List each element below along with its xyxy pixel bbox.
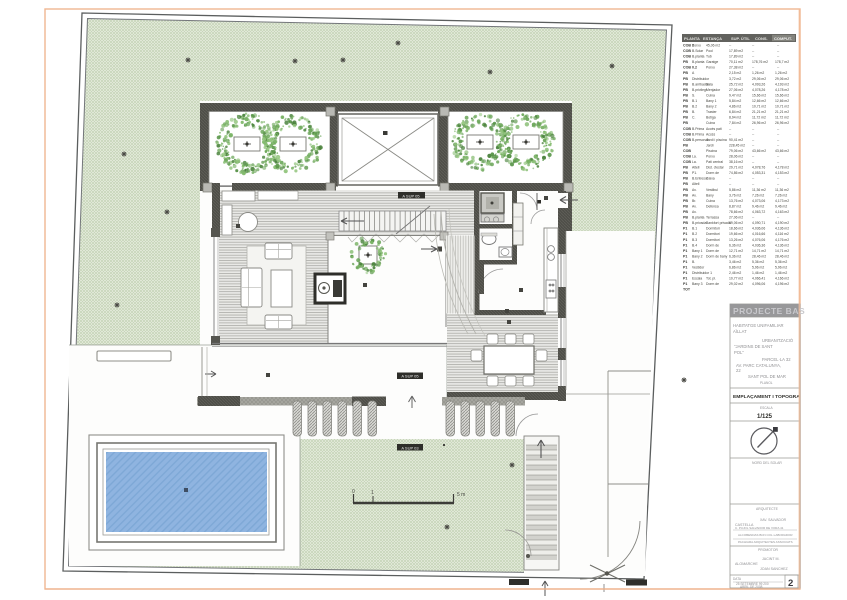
svg-text:5,96 m2: 5,96 m2 bbox=[752, 266, 764, 270]
svg-text:P1.: P1. bbox=[692, 171, 697, 175]
svg-text:P1: P1 bbox=[683, 266, 687, 270]
svg-text:4,136 m2: 4,136 m2 bbox=[775, 243, 789, 247]
svg-text:PB: PB bbox=[683, 171, 688, 175]
svg-text:S.: S. bbox=[692, 93, 695, 97]
svg-text:PB: PB bbox=[683, 188, 688, 192]
svg-text:SANT POL DE MAR: SANT POL DE MAR bbox=[748, 374, 786, 379]
svg-text:12,71 m2: 12,71 m2 bbox=[729, 249, 743, 253]
svg-text:18,66 m2: 18,66 m2 bbox=[729, 227, 743, 231]
svg-text:Bany 1: Bany 1 bbox=[692, 249, 703, 253]
svg-text:B.1: B.1 bbox=[692, 227, 697, 231]
svg-text:Tub: Tub bbox=[706, 55, 712, 59]
svg-text:PB: PB bbox=[683, 177, 688, 181]
svg-text:22: 22 bbox=[736, 368, 741, 373]
svg-text:PB: PB bbox=[683, 121, 688, 125]
svg-text:--: -- bbox=[752, 55, 754, 59]
svg-text:P1: P1 bbox=[683, 238, 687, 242]
svg-text:PB: PB bbox=[683, 110, 688, 114]
svg-text:29,06 m2: 29,06 m2 bbox=[775, 77, 789, 81]
svg-text:1,26 m2: 1,26 m2 bbox=[752, 71, 764, 75]
svg-text:Dormitori: Dormitori bbox=[706, 232, 720, 236]
svg-text:La.: La. bbox=[692, 160, 697, 164]
svg-text:Dormitori: Dormitori bbox=[706, 238, 720, 242]
svg-text:NORD DEL SOLAR: NORD DEL SOLAR bbox=[752, 461, 782, 465]
svg-text:PB: PB bbox=[683, 82, 688, 86]
svg-text:PB: PB bbox=[683, 216, 688, 220]
svg-text:12,66 m2: 12,66 m2 bbox=[752, 99, 766, 103]
svg-text:2,15 m2: 2,15 m2 bbox=[729, 71, 741, 75]
svg-text:P1: P1 bbox=[683, 254, 687, 258]
svg-text:La.: La. bbox=[692, 155, 697, 159]
svg-text:PB: PB bbox=[683, 105, 688, 109]
svg-text:7,84 m2: 7,84 m2 bbox=[729, 121, 741, 125]
svg-text:PB: PB bbox=[683, 204, 688, 208]
svg-text:2,46 m2: 2,46 m2 bbox=[729, 271, 741, 275]
svg-text:COB: COB bbox=[683, 149, 691, 153]
svg-text:DATA: DATA bbox=[733, 577, 742, 581]
svg-text:3,72 m2: 3,72 m2 bbox=[729, 77, 741, 81]
svg-text:178,7 m2: 178,7 m2 bbox=[775, 60, 789, 64]
svg-text:4,066,41: 4,066,41 bbox=[752, 277, 765, 281]
svg-text:Bany: Bany bbox=[706, 193, 714, 197]
svg-text:4,036,06: 4,036,06 bbox=[752, 227, 765, 231]
svg-text:Dorm de: Dorm de bbox=[706, 243, 719, 247]
svg-text:Botiga: Botiga bbox=[706, 116, 716, 120]
svg-text:--: -- bbox=[752, 44, 754, 48]
svg-text:27,06 m2: 27,06 m2 bbox=[729, 216, 743, 220]
svg-text:POL": POL" bbox=[734, 350, 744, 355]
svg-text:70,11 m2: 70,11 m2 bbox=[729, 60, 743, 64]
svg-text:ALOMARCHE: ALOMARCHE bbox=[735, 562, 758, 566]
svg-text:B.1: B.1 bbox=[692, 99, 697, 103]
svg-text:P1: P1 bbox=[683, 227, 687, 231]
svg-text:AV. PARC CATALUNYA,: AV. PARC CATALUNYA, bbox=[736, 363, 781, 368]
svg-text:4,063,72: 4,063,72 bbox=[752, 210, 765, 214]
svg-text:--: -- bbox=[752, 177, 754, 181]
svg-text:ESCALA: ESCALA bbox=[760, 406, 773, 410]
svg-text:4,176 m2: 4,176 m2 bbox=[775, 238, 789, 242]
svg-text:Dorm de: Dorm de bbox=[706, 282, 719, 286]
svg-text:Altell: Altell bbox=[692, 182, 700, 186]
svg-text:4,078,26: 4,078,26 bbox=[752, 88, 765, 92]
svg-text:Bany 3: Bany 3 bbox=[692, 282, 703, 286]
svg-text:--: -- bbox=[752, 49, 754, 53]
svg-text:Av.: Av. bbox=[692, 188, 697, 192]
svg-text:15,66 m2: 15,66 m2 bbox=[752, 93, 766, 97]
svg-text:B.3: B.3 bbox=[692, 238, 697, 242]
svg-text:COMPUT.: COMPUT. bbox=[774, 36, 792, 41]
svg-text:Cuina: Cuina bbox=[706, 93, 715, 97]
svg-text:--: -- bbox=[729, 182, 731, 186]
svg-text:Bany 2: Bany 2 bbox=[692, 254, 703, 258]
svg-text:4,096,06: 4,096,06 bbox=[752, 282, 765, 286]
svg-text:B.planta: B.planta bbox=[692, 216, 705, 220]
svg-text:--: -- bbox=[752, 132, 754, 136]
svg-text:--: -- bbox=[729, 132, 731, 136]
svg-text:--: -- bbox=[752, 216, 754, 220]
svg-text:6,36 m2: 6,36 m2 bbox=[729, 243, 741, 247]
svg-text:--: -- bbox=[752, 182, 754, 186]
svg-text:PB: PB bbox=[683, 88, 688, 92]
svg-text:PB: PB bbox=[683, 93, 688, 97]
svg-text:Jardí: Jardí bbox=[706, 143, 714, 147]
svg-text:PB: PB bbox=[683, 193, 688, 197]
svg-text:4,86 m2: 4,86 m2 bbox=[729, 105, 741, 109]
svg-text:--: -- bbox=[777, 182, 779, 186]
svg-text:4,053,31: 4,053,31 bbox=[752, 171, 765, 175]
svg-text:8,94 m2: 8,94 m2 bbox=[729, 116, 741, 120]
svg-text:Accés: Accés bbox=[706, 132, 716, 136]
svg-text:29,71 m2: 29,71 m2 bbox=[729, 166, 743, 170]
svg-text:Vestibul: Vestibul bbox=[706, 188, 718, 192]
svg-text:Dorm de: Dorm de bbox=[706, 249, 719, 253]
svg-text:PB: PB bbox=[683, 99, 688, 103]
svg-text:"JARDINS DE SANT: "JARDINS DE SANT bbox=[734, 344, 773, 349]
svg-text:4,090,71: 4,090,71 bbox=[752, 221, 765, 225]
svg-text:4,193 m2: 4,193 m2 bbox=[775, 82, 789, 86]
svg-text:0: 0 bbox=[352, 489, 355, 495]
svg-text:EMPLAÇAMENT I TOPOGRA: EMPLAÇAMENT I TOPOGRA bbox=[733, 394, 800, 400]
svg-text:--: -- bbox=[777, 55, 779, 59]
svg-text:PB: PB bbox=[683, 77, 688, 81]
svg-text:6,36 m2: 6,36 m2 bbox=[729, 254, 741, 258]
svg-text:PB: PB bbox=[683, 199, 688, 203]
svg-text:4,078,76: 4,078,76 bbox=[752, 166, 765, 170]
svg-text:--: -- bbox=[777, 160, 779, 164]
svg-text:COB: COB bbox=[683, 132, 691, 136]
svg-text:HABITATGE UNIFAMILIAR: HABITATGE UNIFAMILIAR bbox=[733, 323, 784, 328]
svg-text:Tot. pl.: Tot. pl. bbox=[706, 277, 716, 281]
svg-text:28,46 m2: 28,46 m2 bbox=[775, 254, 789, 258]
svg-text:--: -- bbox=[777, 143, 779, 147]
svg-text:8,87 m2: 8,87 m2 bbox=[729, 204, 741, 208]
svg-text:PB: PB bbox=[683, 221, 688, 225]
svg-text:21,21 m2: 21,21 m2 bbox=[775, 110, 789, 114]
svg-text:PROJECTE BAS: PROJECTE BAS bbox=[733, 306, 805, 316]
svg-text:4,016,66: 4,016,66 bbox=[752, 232, 765, 236]
svg-text:1,26 m2: 1,26 m2 bbox=[775, 71, 787, 75]
svg-text:A SUP 05: A SUP 05 bbox=[401, 374, 419, 379]
svg-text:--: -- bbox=[752, 143, 754, 147]
svg-text:228,45 m2: 228,45 m2 bbox=[729, 143, 745, 147]
svg-text:10,71 m2: 10,71 m2 bbox=[775, 105, 789, 109]
svg-text:Accés pati: Accés pati bbox=[706, 127, 722, 131]
svg-text:Bankfort privada: Bankfort privada bbox=[706, 221, 731, 225]
svg-text:4,166 m2: 4,166 m2 bbox=[775, 277, 789, 281]
svg-text:--: -- bbox=[777, 49, 779, 53]
svg-text:PB: PB bbox=[683, 143, 688, 147]
svg-text:P1: P1 bbox=[683, 232, 687, 236]
svg-text:ALCOBENDAS BCN COL·LABORADOR: ALCOBENDAS BCN COL·LABORADOR bbox=[738, 533, 793, 537]
svg-text:--: -- bbox=[752, 66, 754, 70]
svg-text:--: -- bbox=[752, 155, 754, 159]
svg-text:14,71 m2: 14,71 m2 bbox=[752, 249, 766, 253]
svg-text:1,46 m2: 1,46 m2 bbox=[775, 271, 787, 275]
svg-text:JACINT M.: JACINT M. bbox=[762, 557, 780, 561]
svg-text:10,77 m2: 10,77 m2 bbox=[729, 277, 743, 281]
svg-text:Traster: Traster bbox=[706, 110, 717, 114]
svg-text:B.privada: B.privada bbox=[692, 221, 706, 225]
svg-text:13,76 m2: 13,76 m2 bbox=[729, 199, 743, 203]
svg-text:--: -- bbox=[777, 155, 779, 159]
svg-text:5,86 m2: 5,86 m2 bbox=[729, 188, 741, 192]
svg-text:4,178 m2: 4,178 m2 bbox=[775, 166, 789, 170]
svg-text:P1: P1 bbox=[683, 282, 687, 286]
svg-text:11,36 m2: 11,36 m2 bbox=[752, 188, 766, 192]
svg-text:5,96 m2: 5,96 m2 bbox=[775, 266, 787, 270]
svg-text:6,86 m2: 6,86 m2 bbox=[729, 266, 741, 270]
svg-text:4,076,06: 4,076,06 bbox=[752, 238, 765, 242]
svg-text:7,26 m2: 7,26 m2 bbox=[752, 193, 764, 197]
svg-text:P1: P1 bbox=[683, 277, 687, 281]
svg-text:5,36 m2: 5,36 m2 bbox=[752, 260, 764, 264]
svg-text:COB: COB bbox=[683, 49, 691, 53]
svg-text:B.Solar: B.Solar bbox=[692, 49, 704, 53]
svg-text:11,72 m2: 11,72 m2 bbox=[752, 116, 766, 120]
svg-text:Altell: Altell bbox=[692, 166, 700, 170]
svg-text:28,06 m2: 28,06 m2 bbox=[729, 155, 743, 159]
svg-text:--: -- bbox=[777, 127, 779, 131]
svg-text:AÏLLAT: AÏLLAT bbox=[733, 329, 747, 334]
svg-text:--: -- bbox=[729, 127, 731, 131]
svg-text:1/125: 1/125 bbox=[757, 414, 773, 420]
svg-text:89,06 m2: 89,06 m2 bbox=[729, 221, 743, 225]
svg-text:17,89 m2: 17,89 m2 bbox=[729, 49, 743, 53]
svg-text:4,178 m2: 4,178 m2 bbox=[775, 88, 789, 92]
svg-text:COB: COB bbox=[683, 155, 691, 159]
svg-text:27,06 m2: 27,06 m2 bbox=[729, 88, 743, 92]
svg-text:B.privilegi: B.privilegi bbox=[692, 88, 707, 92]
svg-text:1,46 m2: 1,46 m2 bbox=[752, 271, 764, 275]
svg-text:19,66 m2: 19,66 m2 bbox=[729, 232, 743, 236]
svg-text:5,36 m2: 5,36 m2 bbox=[775, 260, 787, 264]
svg-text:10,71 m2: 10,71 m2 bbox=[752, 105, 766, 109]
svg-text:--: -- bbox=[729, 44, 731, 48]
svg-text:B.2: B.2 bbox=[692, 105, 697, 109]
svg-text:15,66 m2: 15,66 m2 bbox=[775, 93, 789, 97]
svg-text:9,46 m2: 9,46 m2 bbox=[775, 204, 787, 208]
svg-text:--: -- bbox=[752, 127, 754, 131]
svg-text:90,41 m2: 90,41 m2 bbox=[729, 138, 743, 142]
svg-text:B.planta: B.planta bbox=[692, 60, 705, 64]
svg-text:Av.: Av. bbox=[692, 210, 697, 214]
svg-text:C.: C. bbox=[692, 116, 695, 120]
svg-text:78,66 m2: 78,66 m2 bbox=[729, 210, 743, 214]
svg-text:Dist. d'estar: Dist. d'estar bbox=[706, 166, 725, 170]
svg-text:CONS.: CONS. bbox=[755, 36, 768, 41]
svg-text:Menjador: Menjador bbox=[706, 88, 721, 92]
svg-text:PARCEL·LA 32: PARCEL·LA 32 bbox=[762, 357, 791, 362]
svg-text:14,71 m2: 14,71 m2 bbox=[775, 249, 789, 253]
svg-text:Sala: Sala bbox=[706, 82, 713, 86]
svg-text:A SUP 05: A SUP 05 bbox=[402, 193, 420, 198]
svg-text:--: -- bbox=[777, 132, 779, 136]
svg-text:--: -- bbox=[777, 216, 779, 220]
svg-text:Cuina: Cuina bbox=[706, 121, 715, 125]
svg-text:178,76 m2: 178,76 m2 bbox=[752, 60, 768, 64]
svg-text:Av.: Av. bbox=[692, 193, 697, 197]
svg-text:Porxo: Porxo bbox=[706, 66, 715, 70]
svg-text:B.2: B.2 bbox=[692, 232, 697, 236]
svg-text:C. PUJOL SALVADOR DE VORA 41: C. PUJOL SALVADOR DE VORA 41 bbox=[735, 526, 784, 530]
svg-text:21,21 m2: 21,21 m2 bbox=[752, 110, 766, 114]
svg-text:11,36 m2: 11,36 m2 bbox=[775, 188, 789, 192]
svg-text:Bany 1: Bany 1 bbox=[706, 99, 717, 103]
svg-text:PB: PB bbox=[683, 182, 688, 186]
svg-text:26,96 m2: 26,96 m2 bbox=[775, 121, 789, 125]
svg-text:3,46 m2: 3,46 m2 bbox=[729, 260, 741, 264]
svg-text:25,72 m2: 25,72 m2 bbox=[729, 82, 743, 86]
svg-text:5 m: 5 m bbox=[457, 492, 465, 498]
svg-text:PLANTA: PLANTA bbox=[684, 36, 700, 41]
svg-text:Vestidor: Vestidor bbox=[692, 266, 705, 270]
svg-text:45,06 m2: 45,06 m2 bbox=[706, 44, 720, 48]
svg-text:26,96 m2: 26,96 m2 bbox=[752, 121, 766, 125]
svg-text:Br.: Br. bbox=[692, 199, 696, 203]
svg-text:P1: P1 bbox=[683, 260, 687, 264]
svg-text:ARQUITECTE: ARQUITECTE bbox=[756, 507, 779, 511]
svg-text:12,66 m2: 12,66 m2 bbox=[775, 99, 789, 103]
svg-text:1: 1 bbox=[371, 490, 374, 496]
svg-text:PB: PB bbox=[683, 166, 688, 170]
svg-text:27,38 m2: 27,38 m2 bbox=[729, 66, 743, 70]
svg-text:9,47 m2: 9,47 m2 bbox=[729, 93, 741, 97]
svg-text:ESTANÇA: ESTANÇA bbox=[703, 36, 722, 41]
svg-text:Escala: Escala bbox=[692, 277, 702, 281]
svg-text:4,163 m2: 4,163 m2 bbox=[775, 210, 789, 214]
svg-text:COB: COB bbox=[683, 127, 691, 131]
svg-text:--: -- bbox=[729, 177, 731, 181]
svg-text:B.4: B.4 bbox=[692, 243, 697, 247]
svg-text:--: -- bbox=[777, 44, 779, 48]
svg-text:Distribuidor 1: Distribuidor 1 bbox=[692, 271, 712, 275]
svg-text:29,06 m2: 29,06 m2 bbox=[752, 77, 766, 81]
svg-text:SUP. ÚTIL: SUP. ÚTIL bbox=[731, 36, 750, 41]
svg-text:29,02 m2: 29,02 m2 bbox=[729, 282, 743, 286]
svg-text:4,153 m2: 4,153 m2 bbox=[775, 171, 789, 175]
svg-text:13,26 m2: 13,26 m2 bbox=[729, 238, 743, 242]
svg-text:Distribuidor: Distribuidor bbox=[692, 77, 710, 81]
svg-text:JOAN SANCHEZ: JOAN SANCHEZ bbox=[760, 567, 789, 571]
svg-text:3,76 m2: 3,76 m2 bbox=[729, 193, 741, 197]
svg-text:Piscina: Piscina bbox=[706, 149, 717, 153]
svg-text:COB: COB bbox=[683, 160, 691, 164]
svg-text:4,073,06: 4,073,06 bbox=[752, 199, 765, 203]
svg-text:COB: COB bbox=[683, 55, 691, 59]
svg-text:5,84 m2: 5,84 m2 bbox=[729, 99, 741, 103]
svg-text:Jardí i piscina: Jardí i piscina bbox=[706, 138, 727, 142]
svg-text:9,46 m2: 9,46 m2 bbox=[752, 204, 764, 208]
svg-text:--: -- bbox=[777, 138, 779, 142]
svg-text:43,66 m2: 43,66 m2 bbox=[775, 149, 789, 153]
svg-text:Porxo: Porxo bbox=[692, 44, 701, 48]
svg-text:Dorm de: Dorm de bbox=[706, 171, 719, 175]
svg-text:74,86 m2: 74,86 m2 bbox=[729, 171, 743, 175]
svg-text:Cuina: Cuina bbox=[706, 199, 715, 203]
svg-text:11,72 m2: 11,72 m2 bbox=[775, 116, 789, 120]
svg-text:B.: B. bbox=[692, 110, 695, 114]
svg-text:Dormitori: Dormitori bbox=[706, 227, 720, 231]
svg-text:4,173 m2: 4,173 m2 bbox=[775, 199, 789, 203]
svg-text:Garatge: Garatge bbox=[706, 60, 718, 64]
svg-text:XAV. SALVADOR: XAV. SALVADOR bbox=[760, 518, 787, 522]
svg-text:4,136 m2: 4,136 m2 bbox=[775, 227, 789, 231]
svg-text:PB: PB bbox=[683, 210, 688, 214]
svg-text:4,190 m2: 4,190 m2 bbox=[775, 221, 789, 225]
svg-text:Terrassa: Terrassa bbox=[706, 216, 719, 220]
svg-text:P1: P1 bbox=[683, 243, 687, 247]
svg-text:4,093,26: 4,093,26 bbox=[752, 82, 765, 86]
svg-text:B.Prima: B.Prima bbox=[692, 127, 704, 131]
svg-text:COB: COB bbox=[683, 138, 691, 142]
svg-text:--: -- bbox=[777, 66, 779, 70]
svg-text:17,89 m2: 17,89 m2 bbox=[729, 55, 743, 59]
svg-text:PROMOTOR: PROMOTOR bbox=[758, 548, 778, 552]
svg-text:PB: PB bbox=[683, 71, 688, 75]
svg-text:4,196 m2: 4,196 m2 bbox=[775, 282, 789, 286]
svg-text:PACHIARA ARQUITECTES ASSOCIATS: PACHIARA ARQUITECTES ASSOCIATS bbox=[738, 540, 793, 544]
svg-text:38,16 m2: 38,16 m2 bbox=[729, 160, 743, 164]
svg-text:4,036,36: 4,036,36 bbox=[752, 243, 765, 247]
svg-text:Porxo: Porxo bbox=[706, 155, 715, 159]
svg-text:Av.: Av. bbox=[692, 204, 697, 208]
svg-text:TOT: TOT bbox=[683, 288, 691, 292]
svg-text:43,66 m2: 43,66 m2 bbox=[752, 149, 766, 153]
svg-text:6,84 m2: 6,84 m2 bbox=[729, 110, 741, 114]
svg-text:PB: PB bbox=[683, 116, 688, 120]
svg-text:Bany 2: Bany 2 bbox=[706, 105, 717, 109]
svg-text:Defensa: Defensa bbox=[706, 204, 719, 208]
svg-text:Pool: Pool bbox=[706, 49, 713, 53]
svg-text:Pati central: Pati central bbox=[706, 160, 723, 164]
svg-text:79,06 m2: 79,06 m2 bbox=[729, 149, 743, 153]
svg-text:4,116 m2: 4,116 m2 bbox=[775, 232, 789, 236]
svg-text:P1: P1 bbox=[683, 271, 687, 275]
svg-text:COB 0.2: COB 0.2 bbox=[683, 66, 697, 70]
svg-text:B.Prima: B.Prima bbox=[692, 132, 704, 136]
svg-text:PB: PB bbox=[683, 60, 688, 64]
svg-text:7,26 m2: 7,26 m2 bbox=[775, 193, 787, 197]
svg-text:2: 2 bbox=[788, 578, 793, 589]
svg-text:A SUP 03: A SUP 03 bbox=[401, 445, 419, 450]
svg-text:28,46 m2: 28,46 m2 bbox=[752, 254, 766, 258]
svg-text:--: -- bbox=[777, 177, 779, 181]
svg-text:B.: B. bbox=[692, 260, 695, 264]
svg-text:B.planta: B.planta bbox=[692, 55, 705, 59]
svg-text:URBANITZACIÓ: URBANITZACIÓ bbox=[762, 338, 794, 343]
svg-text:PLANOL: PLANOL bbox=[760, 381, 773, 385]
svg-text:P1: P1 bbox=[683, 249, 687, 253]
svg-text:Dorm de bany: Dorm de bany bbox=[706, 254, 728, 258]
svg-text:Caixa: Caixa bbox=[706, 177, 715, 181]
svg-text:--: -- bbox=[752, 138, 754, 142]
svg-text:--: -- bbox=[752, 160, 754, 164]
